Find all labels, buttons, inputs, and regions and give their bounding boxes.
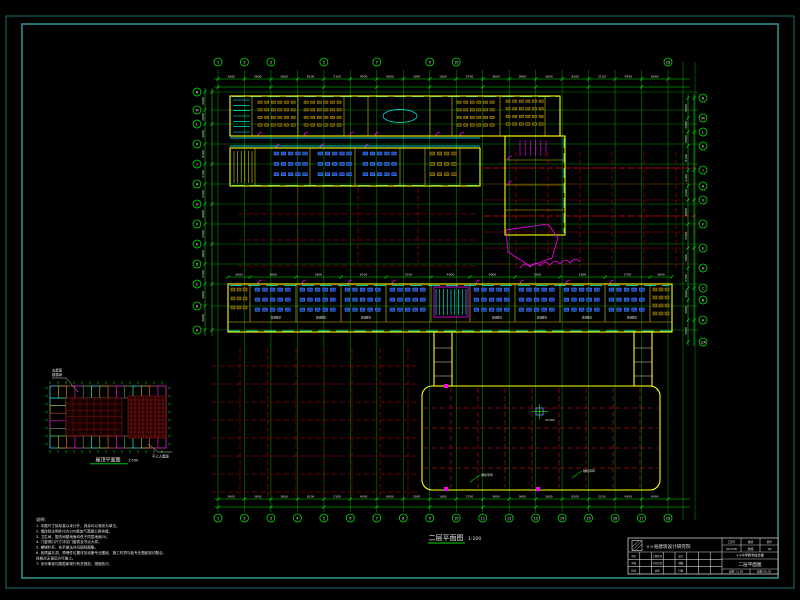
- key-plan-title: 屋顶平面图: [95, 458, 120, 464]
- axis-label: K: [196, 142, 199, 146]
- dimension-text: 4500: [201, 190, 205, 198]
- axis-label: D: [702, 266, 705, 270]
- level-mark-text: ±0.000: [545, 418, 555, 422]
- axis-label: 10: [454, 60, 459, 64]
- axis-label: M: [701, 116, 704, 120]
- general-notes: 说明:1. 本图尺寸除标高以米计外，其余均以毫米为单位。2. 墙体除注明外均为2…: [36, 516, 166, 566]
- dimension-text: 3600: [235, 273, 243, 277]
- dimension-text: 3600: [201, 97, 205, 105]
- axis-label: 11: [480, 516, 485, 520]
- title-block-text: 工程号: [728, 540, 736, 544]
- dimension-text: 3600: [280, 75, 288, 79]
- dimension-text: 3600: [201, 113, 205, 121]
- north-wing-partitions: [252, 96, 545, 136]
- axis-label: 7: [376, 516, 378, 520]
- title-block-text: 06-038: [726, 547, 737, 551]
- axis-label: L: [196, 122, 198, 126]
- axis-label: 17: [639, 516, 644, 520]
- dimension-text: 6900: [651, 495, 659, 499]
- dimension-text: 2100: [405, 273, 413, 277]
- axis-label: 18: [666, 516, 671, 520]
- room-label: 普通教室: [582, 316, 593, 320]
- axis-label: E: [196, 242, 199, 246]
- dimension-text: 3600: [201, 291, 205, 299]
- dimension-text: 3600: [545, 75, 553, 79]
- title-block-text: 会签: [655, 568, 660, 572]
- east-wing-outline: [505, 136, 565, 235]
- dimension-chains: 3600360036008100210045006900330018002700…: [201, 75, 696, 509]
- dimension-text: 4500: [624, 495, 632, 499]
- dimension-text: 3600: [315, 273, 323, 277]
- dimension-text: 3600: [201, 130, 205, 138]
- axis-label: 1: [217, 60, 219, 64]
- drawing-title-underline: [428, 542, 465, 543]
- leader-text: 绿化草坪: [481, 472, 493, 477]
- meeting-table: [383, 110, 417, 123]
- axis-label: 16: [613, 516, 618, 520]
- title-block-text: 图号: [767, 540, 773, 544]
- dimension-text: 3600: [254, 75, 262, 79]
- dimension-text: 4500: [360, 75, 368, 79]
- dimension-text: 8100: [360, 273, 368, 277]
- axis-label: A: [702, 318, 705, 322]
- title-block-text: 二层平面图: [739, 562, 762, 568]
- axis-label: 14: [560, 516, 565, 520]
- axis-label: G: [196, 202, 199, 206]
- axis-label: 3: [270, 516, 272, 520]
- axis-label: A: [196, 328, 199, 332]
- dimension-text: 3600: [280, 495, 288, 499]
- bridge-rungs: [434, 348, 652, 376]
- dimension-text: 1800: [201, 250, 205, 258]
- dimension-text: 3300: [534, 273, 542, 277]
- axis-label: N: [702, 96, 705, 100]
- notes-line: 3. 卫生间、盥洗间楼地面均低于同层地面20。: [36, 534, 110, 539]
- axis-label: M: [195, 108, 198, 112]
- dimension-text: 2700: [684, 274, 688, 282]
- title-block-text: 图别: [748, 540, 754, 544]
- dimension-text: 8100: [684, 154, 688, 162]
- dimension-text: 2700: [466, 75, 474, 79]
- dimension-text: 3300: [413, 75, 421, 79]
- dimension-text: 6900: [386, 75, 394, 79]
- axis-label: 15: [586, 516, 591, 520]
- misc-annotations: 绿化草坪绿化草坪±0.000: [228, 97, 672, 483]
- dimension-text: 3600: [684, 290, 688, 298]
- dimension-text: 3600: [269, 273, 277, 277]
- axis-label: L: [702, 130, 704, 134]
- dimension-text: 3600: [227, 495, 235, 499]
- title-block-text: 审定: [631, 554, 636, 558]
- axis-label: H: [196, 182, 199, 186]
- room-label: 普通教室: [316, 316, 327, 320]
- dimension-text: 3600: [201, 314, 205, 322]
- key-plan-leader-top-text2: 楼梯间: [52, 372, 63, 377]
- title-block-text: 制图: [678, 561, 683, 565]
- title-block-text: 日期: [678, 568, 683, 572]
- axis-label: 1: [217, 516, 219, 520]
- dimension-text: 3600: [684, 135, 688, 143]
- north-corridor: [230, 138, 480, 146]
- axis-label: G: [702, 198, 705, 202]
- axis-label: N: [196, 90, 199, 94]
- dimension-text: 8100: [572, 495, 580, 499]
- room-label: 普通教室: [271, 316, 282, 320]
- axis-label: C: [702, 286, 705, 290]
- dimension-text: 2100: [201, 170, 205, 178]
- title-block-text: ××中学教学综合楼: [736, 553, 764, 558]
- axis-label: H: [702, 184, 705, 188]
- dimension-text: 2100: [684, 174, 688, 182]
- cad-canvas[interactable]: 3600360036008100210045006900330018002700…: [0, 0, 800, 600]
- dimension-text: 3600: [684, 306, 688, 314]
- notes-header: 说明:: [36, 516, 46, 523]
- notes-line: 4. 门窗洞口尺寸详见门窗表及节点大样。: [36, 539, 102, 544]
- axis-label: B: [196, 304, 199, 308]
- room-label: 普通教室: [361, 316, 372, 320]
- dimension-text: 3600: [254, 495, 262, 499]
- axis-label: K: [702, 144, 705, 148]
- axis-label: 7: [376, 60, 378, 64]
- courtyard-garden-outline: [506, 224, 558, 266]
- dimension-text: 4500: [447, 273, 455, 277]
- dimension-text: 1800: [579, 273, 587, 277]
- axis-label: 2: [243, 60, 245, 64]
- axis-label: J: [195, 162, 197, 166]
- dimension-text: 3300: [201, 230, 205, 238]
- axis-label: 8: [402, 516, 405, 520]
- dimension-text: 8100: [307, 75, 315, 79]
- title-block-text: 审核: [631, 561, 636, 565]
- title-block-text: 工程负责: [653, 554, 663, 558]
- notes-line: 2. 墙体除注明外均为200厚加气混凝土砌块墙。: [36, 528, 112, 533]
- drawing-title-scale: 1:100: [468, 536, 481, 542]
- dimension-text: 6900: [684, 208, 688, 216]
- dimension-text: 3600: [492, 75, 500, 79]
- axis-label: 9: [429, 60, 432, 64]
- dimension-text: 1800: [684, 254, 688, 262]
- axis-label: 3: [270, 60, 272, 64]
- dimension-text: 3600: [492, 495, 500, 499]
- title-block-text: 专业负责: [653, 561, 663, 565]
- east-wing-partitions: [505, 160, 565, 210]
- axis-label: 5: [323, 516, 325, 520]
- axis-label: 5: [323, 60, 325, 64]
- axis-label: F: [702, 222, 704, 226]
- dimension-text: 4500: [624, 75, 632, 79]
- axis-label: 6: [349, 516, 352, 520]
- cad-viewport[interactable]: 3600360036008100210045006900330018002700…: [0, 0, 800, 600]
- building-plan: [228, 96, 672, 491]
- axis-label: E: [702, 246, 705, 250]
- dimension-text: 2100: [598, 495, 606, 499]
- dimension-text: 6900: [201, 210, 205, 218]
- drawing-title-text: 二层平面图: [429, 534, 464, 542]
- playground-outline: [422, 386, 660, 490]
- dimension-text: 6900: [386, 495, 394, 499]
- dimension-text: 8100: [201, 150, 205, 158]
- dimension-text: 8100: [307, 495, 315, 499]
- dimension-text: 2100: [333, 75, 341, 79]
- axis-label: J: [701, 168, 703, 172]
- dimension-text: 1800: [439, 495, 447, 499]
- notes-line: 7. 未尽事宜均按国家现行有关规范、规程执行。: [36, 561, 112, 566]
- title-block-text: 设计: [678, 554, 683, 558]
- drawing-title: 二层平面图 1:100: [428, 534, 481, 544]
- title-block-text: ××省建筑设计研究院: [646, 543, 691, 550]
- axis-label: 10: [454, 516, 459, 520]
- title-block-text: 建施: [747, 546, 753, 551]
- key-plan-scale: 1:500: [128, 459, 139, 463]
- axis-label: 9: [429, 516, 432, 520]
- dimension-text: 3600: [545, 495, 553, 499]
- key-plan-leader-top: [52, 378, 78, 392]
- dimension-text: 2100: [598, 75, 606, 79]
- notes-line: 经核对无误后方可施工。: [36, 555, 76, 560]
- dimension-text: 6900: [651, 75, 659, 79]
- axis-label: F: [196, 222, 198, 226]
- dimension-text: 3600: [684, 327, 688, 335]
- dimension-text: 2700: [466, 495, 474, 499]
- title-block-text: 校对: [631, 568, 636, 572]
- sheet-frame: [6, 16, 794, 588]
- axis-label: 1/A: [700, 340, 706, 344]
- room-label: 普通教室: [537, 316, 548, 320]
- title-block-text: 09: [768, 547, 772, 551]
- room-label: 普通教室: [492, 316, 503, 320]
- leader-text: 绿化草坪: [583, 468, 595, 473]
- title-block-text: 比例 1:100: [729, 570, 744, 574]
- dimension-text: 2100: [333, 495, 341, 499]
- playground-center-symbol: [532, 404, 548, 419]
- dimension-text: 4500: [360, 495, 368, 499]
- room-label: 普通教室: [627, 316, 638, 320]
- axis-label: 13: [533, 516, 538, 520]
- axis-label: D: [196, 262, 199, 266]
- axis-label: 12: [507, 516, 512, 520]
- title-block-text: 日期 06.05: [757, 570, 772, 574]
- axis-label: B: [702, 298, 705, 302]
- dimension-text: 2700: [624, 273, 632, 277]
- axis-label: 2: [243, 516, 245, 520]
- title-block: ××省建筑设计研究院审定工程负责设计审核专业负责制图校对会签日期工程号图别图号0…: [628, 538, 778, 574]
- dimension-text: 3600: [684, 104, 688, 112]
- dimension-text: 3300: [413, 495, 421, 499]
- axis-label: 4: [296, 516, 299, 520]
- link-bridges: [434, 332, 652, 386]
- dimension-text: 4500: [684, 189, 688, 197]
- dimension-text: 3600: [519, 495, 527, 499]
- notes-line: 5. 楼梯栏杆、扶手做法详见国标图集。: [36, 545, 98, 550]
- dimension-text: 3600: [657, 273, 665, 277]
- notes-line: 1. 本图尺寸除标高以米计外，其余均以毫米为单位。: [36, 523, 120, 528]
- key-plan-leader-top-text1: 出屋面: [52, 368, 63, 373]
- dimension-text: 6900: [489, 273, 497, 277]
- axis-label: 18: [666, 60, 671, 64]
- axis-label: C: [196, 282, 199, 286]
- dimension-text: 3600: [684, 121, 688, 129]
- dimension-text: 2700: [201, 270, 205, 278]
- key-plan-leader-bottom-text: 不上人屋面: [152, 454, 170, 459]
- furniture-arrays: 普通教室普通教室普通教室普通教室普通教室普通教室普通教室: [231, 100, 669, 320]
- dimension-text: 3300: [684, 232, 688, 240]
- dimension-text: 3600: [519, 75, 527, 79]
- south-wing-outline: [228, 284, 672, 332]
- roof-key-plan: 出屋面 楼梯间 不上人屋面 屋顶平面图 1:500: [45, 368, 172, 465]
- notes-line: 6. 各预留孔洞、预埋件位置详见设备专业图纸，施工时须与各专业图纸密切配合，: [36, 550, 166, 555]
- dimension-text: 1800: [439, 75, 447, 79]
- dimension-text: 3600: [227, 75, 235, 79]
- key-plan-title-underline: [90, 463, 128, 464]
- dimension-text: 8100: [572, 75, 580, 79]
